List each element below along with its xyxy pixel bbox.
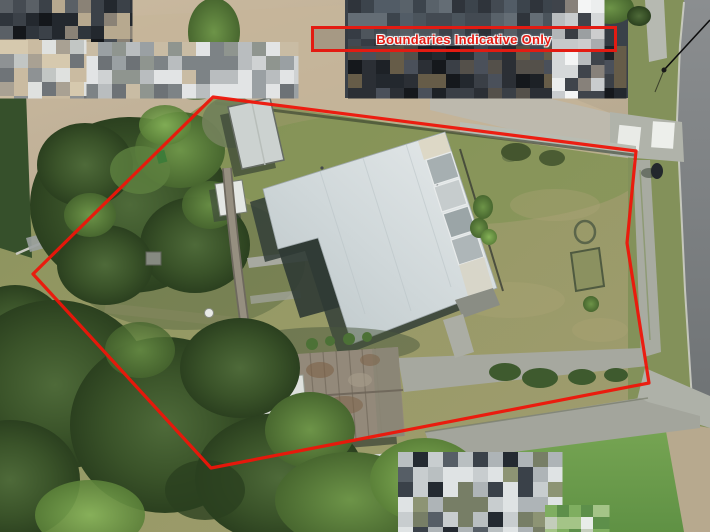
rubbish-bin	[651, 163, 663, 179]
aerial-photo-canvas	[0, 0, 710, 532]
boundaries-banner: Boundaries Indicative Only	[311, 26, 617, 52]
satellite-dish	[205, 309, 214, 318]
power-pole	[662, 68, 667, 73]
aerial-property-photo: Boundaries Indicative Only	[0, 0, 710, 532]
boundaries-banner-label: Boundaries Indicative Only	[376, 32, 551, 47]
